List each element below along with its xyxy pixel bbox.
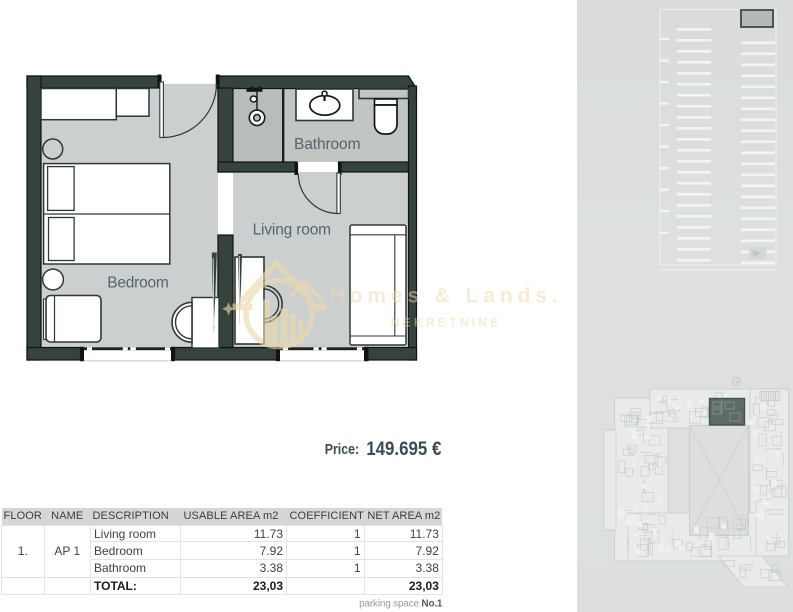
svg-text:149.695 €: 149.695 € [366,438,441,460]
svg-text:Bedroom: Bedroom [107,274,169,291]
svg-text:parking space No.1: parking space No.1 [359,599,443,610]
svg-text:Living room: Living room [253,222,332,239]
svg-text:NEKRETNINE: NEKRETNINE [391,315,499,329]
svg-text:Bathroom: Bathroom [294,136,361,153]
svg-text:Price:: Price: [325,441,360,458]
